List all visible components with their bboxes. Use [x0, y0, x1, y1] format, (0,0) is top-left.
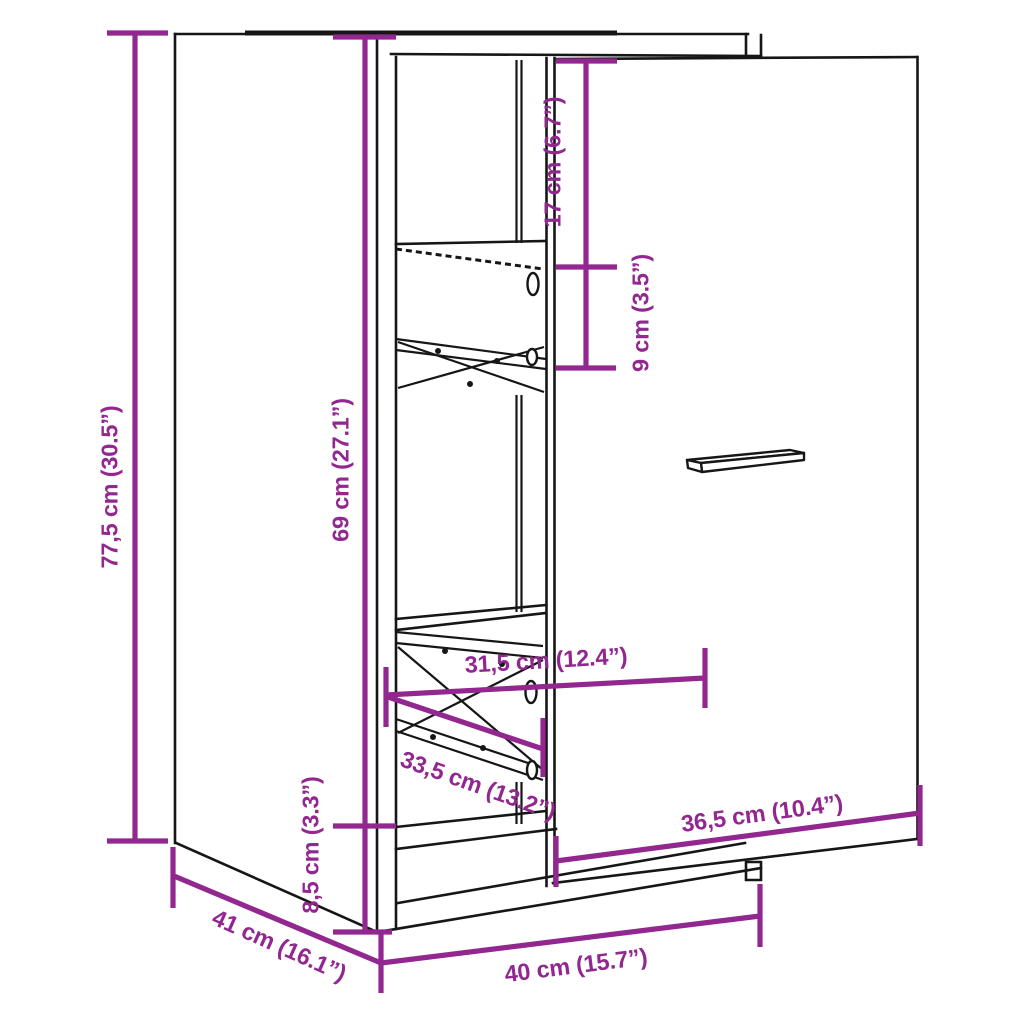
plinth-height-label: 8,5 cm (3.3”)	[299, 776, 323, 913]
top-clearance-label: 17 cm (6.7”)	[541, 97, 565, 228]
dimension-lines	[107, 33, 920, 993]
dimension-diagram: 77,5 cm (30.5”) 69 cm (27.1”) 17 cm (6.7…	[0, 0, 1024, 1024]
total-height-label: 77,5 cm (30.5”)	[98, 406, 122, 569]
carcass-lines	[175, 33, 761, 932]
pullout-unit-lines	[396, 60, 556, 849]
basket-height-label: 9 cm (3.5”)	[629, 254, 653, 372]
door-lines	[547, 57, 918, 886]
interior-height-label: 69 cm (27.1”)	[329, 398, 353, 542]
door-handle	[687, 450, 804, 472]
cabinet-drawing	[0, 0, 1024, 1024]
